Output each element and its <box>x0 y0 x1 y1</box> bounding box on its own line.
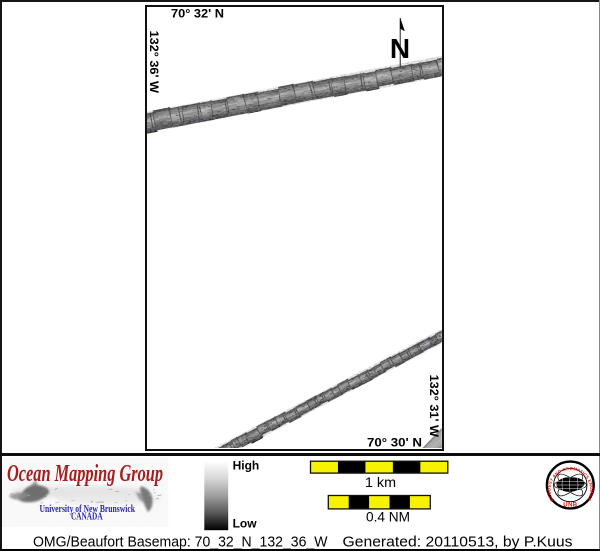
svg-text:High: High <box>233 458 260 472</box>
svg-text:UNB: UNB <box>563 502 577 509</box>
svg-text:0.4 NM: 0.4 NM <box>366 509 410 524</box>
svg-text:1 km: 1 km <box>365 475 396 490</box>
svg-text:Ocean Mapping Group: Ocean Mapping Group <box>7 460 163 487</box>
svg-text:CANADA: CANADA <box>71 512 103 523</box>
svg-text:Low: Low <box>233 516 258 530</box>
